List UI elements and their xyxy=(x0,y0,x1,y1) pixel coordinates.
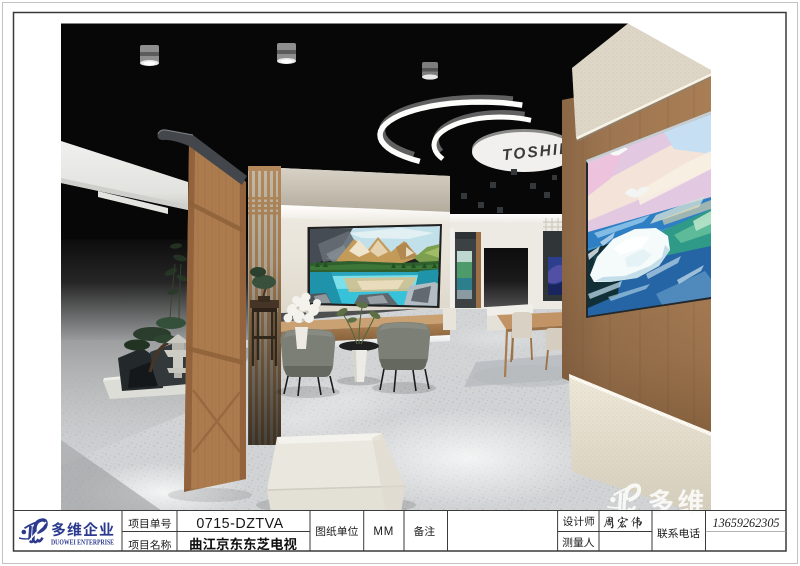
svg-text:13659262305: 13659262305 xyxy=(712,516,779,530)
svg-text:DUOWEI ENTERPRISE: DUOWEI ENTERPRISE xyxy=(51,539,114,547)
svg-text:0715-DZTVA: 0715-DZTVA xyxy=(196,516,283,532)
svg-text:MM: MM xyxy=(373,526,394,538)
